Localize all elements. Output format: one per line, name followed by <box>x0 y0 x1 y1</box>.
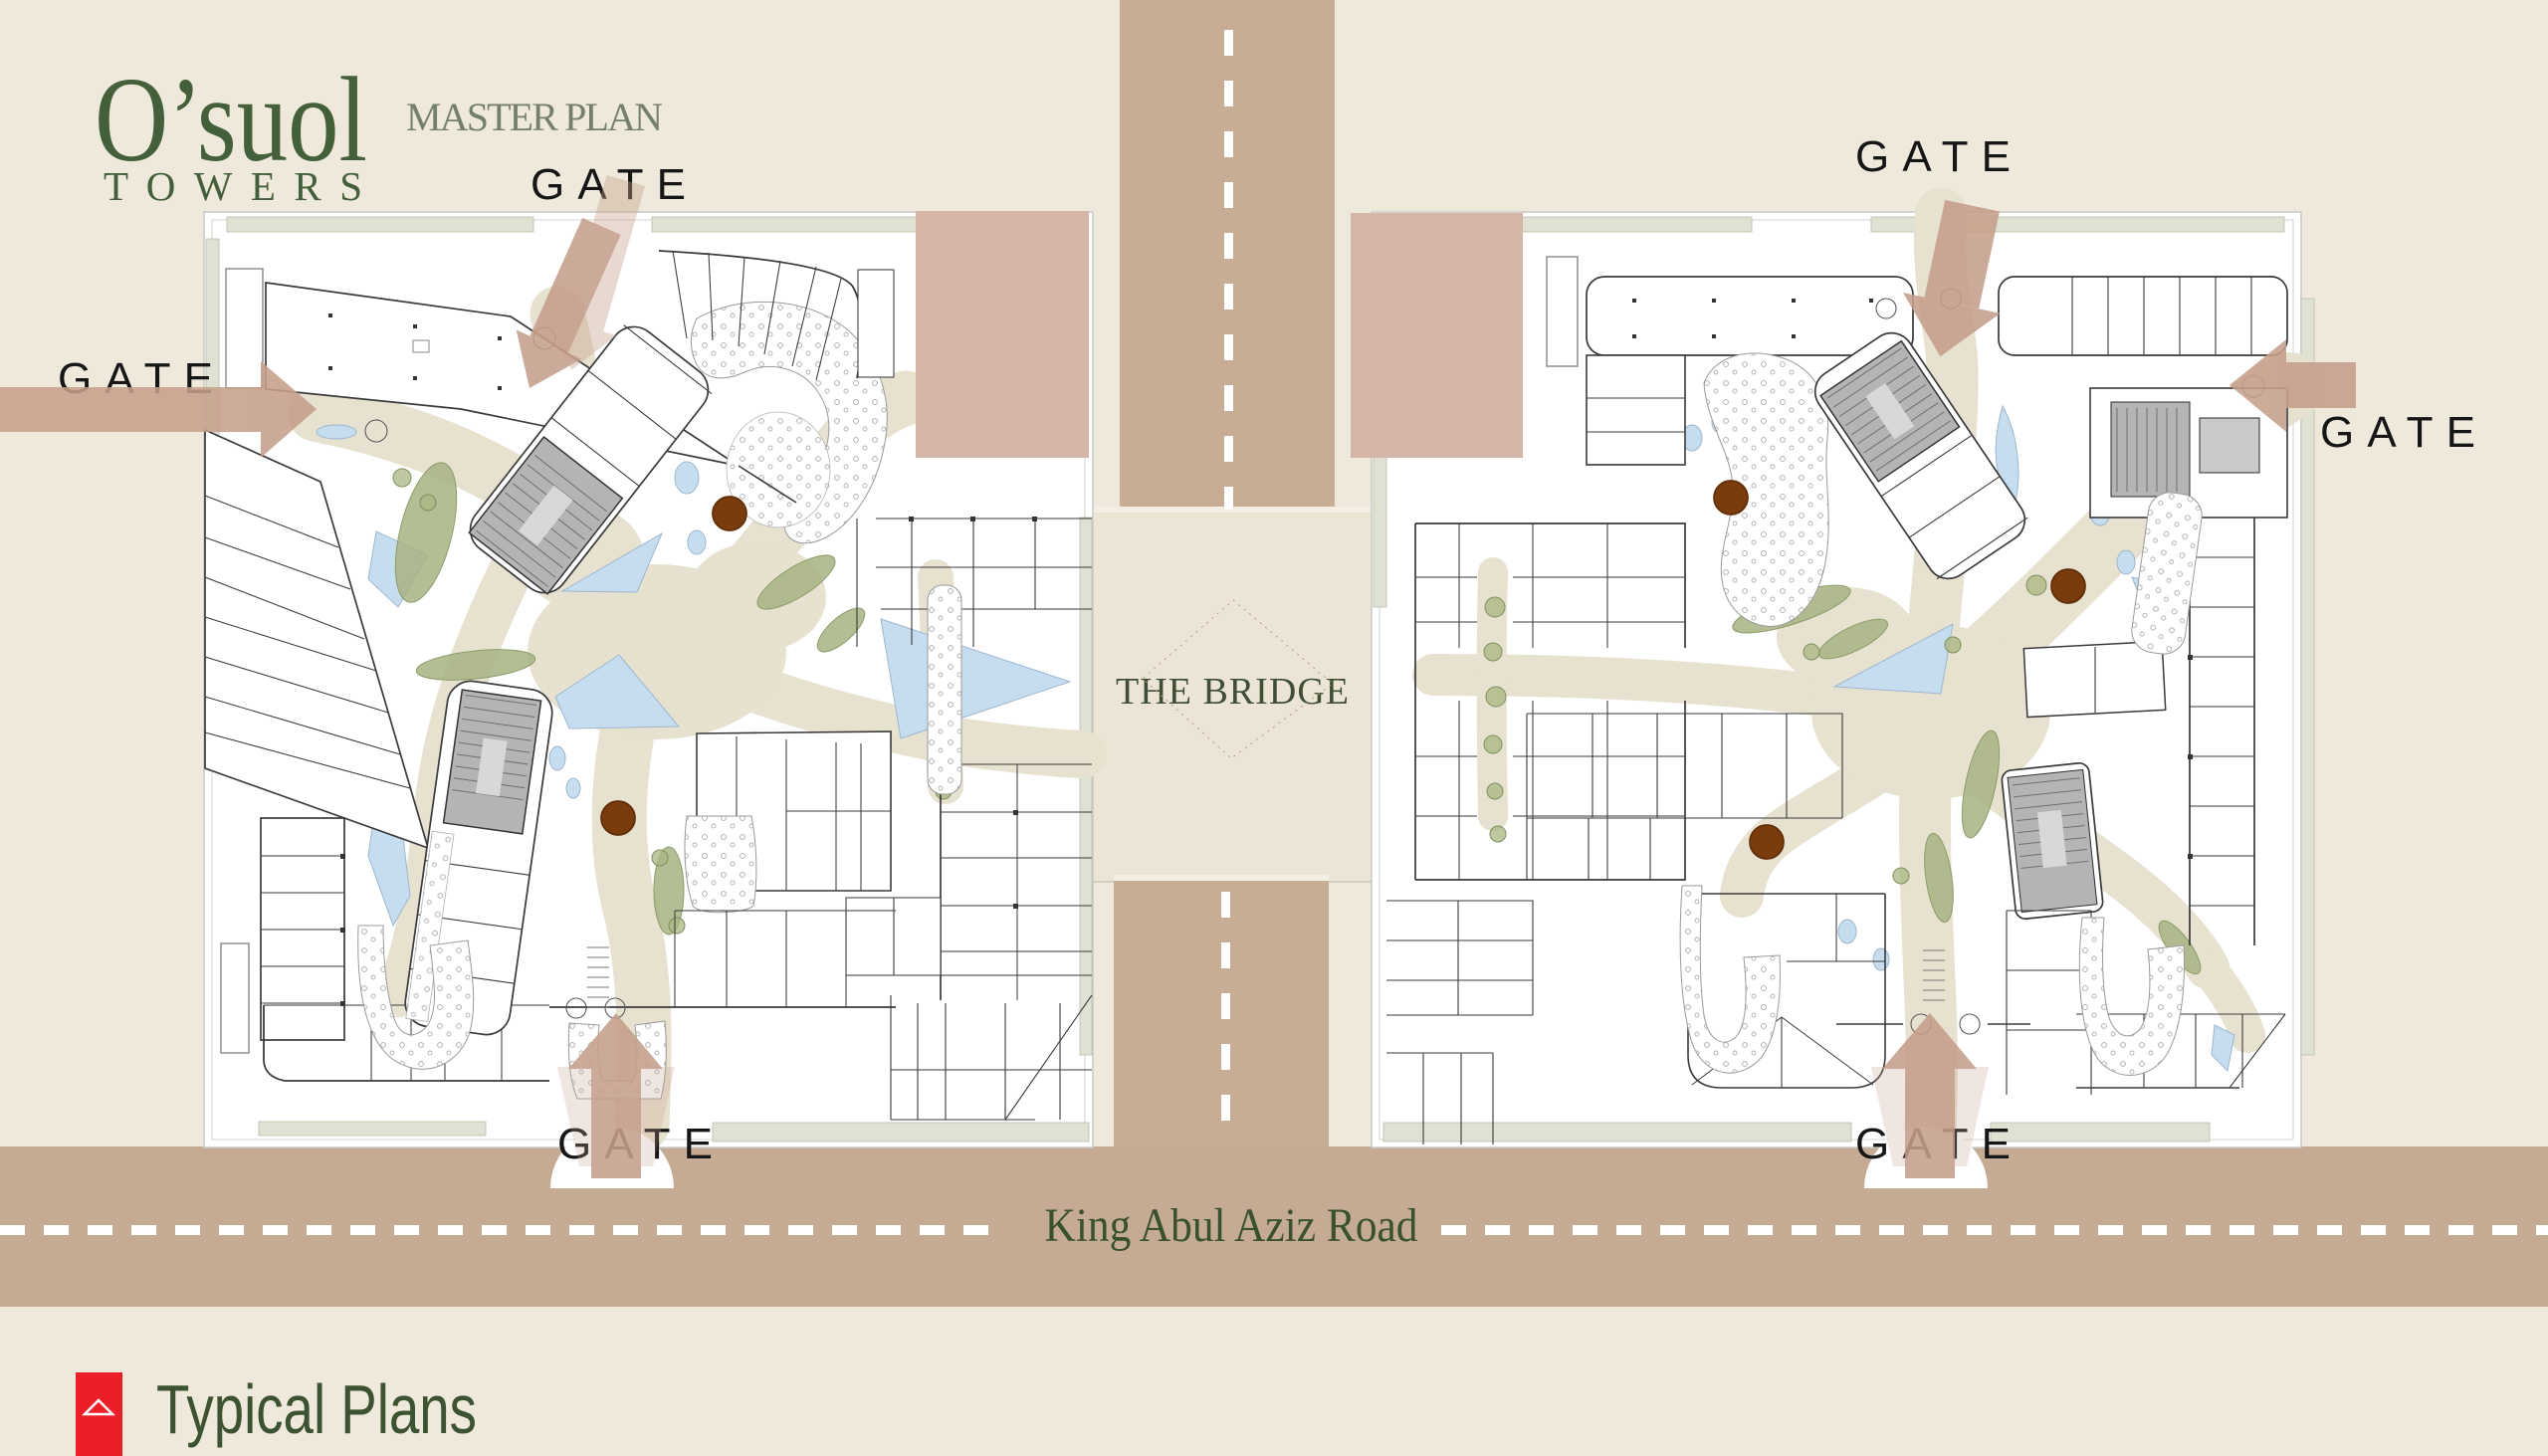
svg-text:GATE: GATE <box>1855 132 2022 181</box>
svg-text:GATE: GATE <box>2320 408 2487 457</box>
svg-text:King Abul Aziz Road: King Abul Aziz Road <box>1045 1199 1418 1252</box>
svg-text:MASTER PLAN: MASTER PLAN <box>406 95 663 139</box>
svg-text:THE BRIDGE: THE BRIDGE <box>1116 671 1355 713</box>
svg-text:Typical Plans: Typical Plans <box>156 1370 477 1448</box>
